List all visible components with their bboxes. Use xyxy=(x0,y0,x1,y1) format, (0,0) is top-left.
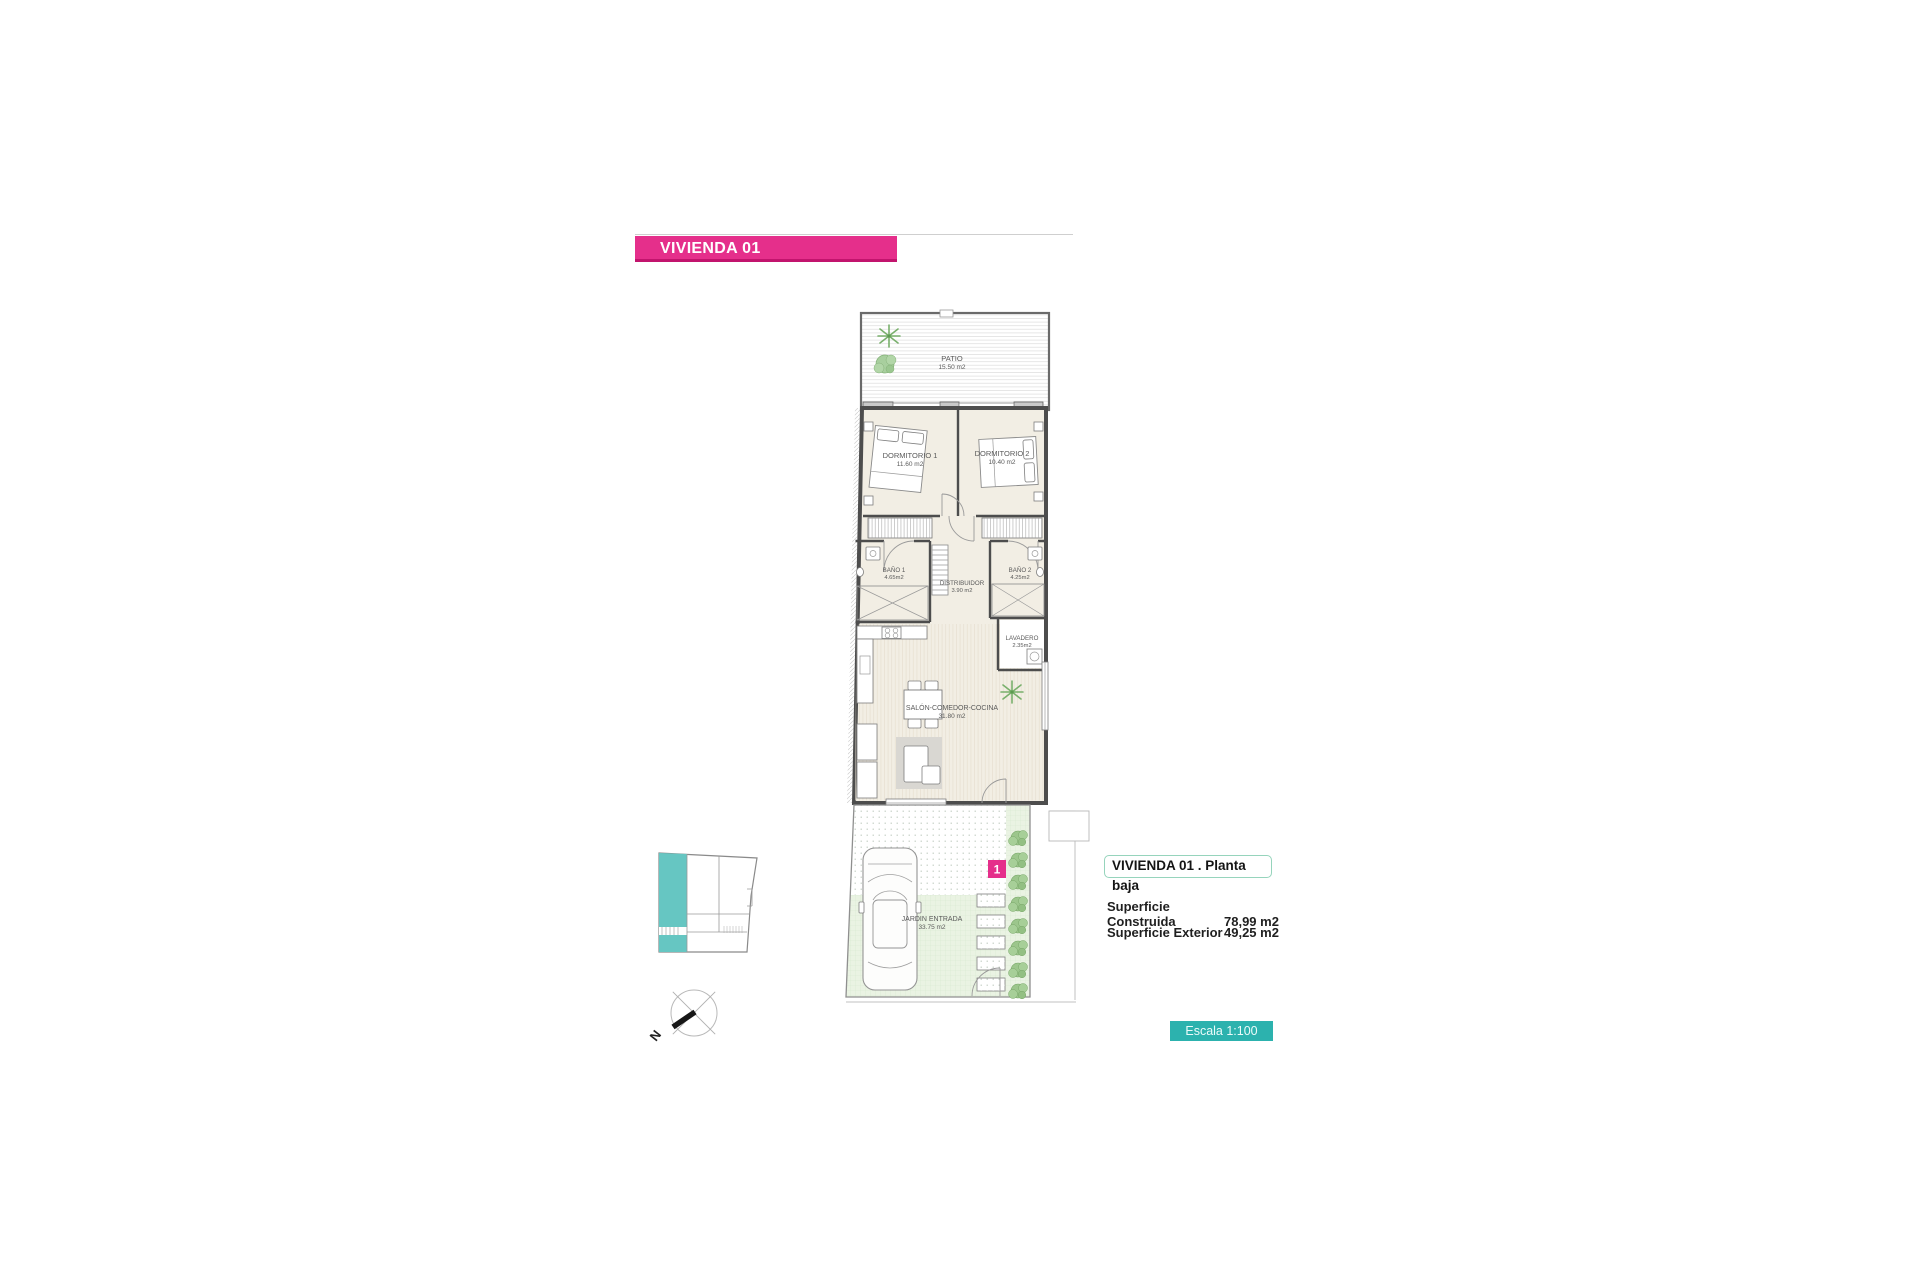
room-label-patio: PATIO xyxy=(941,354,963,363)
compass-north-label: N xyxy=(647,1027,665,1044)
unit-badge-number: 1 xyxy=(994,863,1001,877)
scale-box: Escala 1:100 xyxy=(1170,1021,1273,1041)
room-area-patio: 15.50 m2 xyxy=(938,364,965,371)
legend-row-exterior: Superficie Exterior49,25 m2 xyxy=(1107,925,1279,940)
nightstand xyxy=(864,496,873,505)
nightstand xyxy=(864,422,873,431)
floor-plan: PATIO 15.50 m2 xyxy=(830,300,1090,1010)
legend-label-exterior: Superficie Exterior xyxy=(1107,925,1224,940)
wardrobe-1 xyxy=(868,518,932,538)
unit-badge: 1 xyxy=(988,860,1006,878)
distribuidor-shaft xyxy=(932,545,948,595)
key-plan-highlight-unit xyxy=(659,853,687,952)
wardrobe-2 xyxy=(982,518,1042,538)
nightstand xyxy=(1034,492,1043,501)
room-area-dormitorio-2: 10.40 m2 xyxy=(988,459,1015,466)
room-area-jardin: 33.75 m2 xyxy=(918,924,945,931)
room-area-salon: 31.80 m2 xyxy=(938,713,965,720)
north-compass: N xyxy=(646,982,738,1074)
room-area-bano-1: 4.65m2 xyxy=(884,575,903,581)
floor-plan-svg: PATIO 15.50 m2 xyxy=(830,300,1090,1010)
sofa-rug xyxy=(896,737,942,789)
legend-title-box: VIVIENDA 01 . Planta baja xyxy=(1104,855,1272,878)
room-label-distribuidor: DISTRIBUIDOR xyxy=(940,580,985,587)
legend-value-exterior: 49,25 m2 xyxy=(1224,925,1279,940)
page: VIVIENDA 01 xyxy=(0,0,1920,1280)
north-arrow-icon xyxy=(673,1012,695,1027)
room-label-salon: SALÓN-COMEDOR-COCINA xyxy=(906,703,999,712)
room-label-dormitorio-2: DORMITORIO 2 xyxy=(975,449,1030,458)
room-label-dormitorio-1: DORMITORIO 1 xyxy=(883,451,938,460)
room-patio: PATIO 15.50 m2 xyxy=(861,310,1049,413)
room-label-bano-2: BAÑO 2 xyxy=(1009,567,1032,574)
key-plan-notch xyxy=(659,927,687,935)
room-area-distribuidor: 3.90 m2 xyxy=(952,588,973,594)
room-area-bano-2: 4.25m2 xyxy=(1010,575,1029,581)
key-plan xyxy=(648,844,763,959)
room-label-bano-1: BAÑO 1 xyxy=(883,567,906,574)
room-area-lavadero: 2.35m2 xyxy=(1012,643,1031,649)
room-area-dormitorio-1: 11.60 m2 xyxy=(897,461,924,468)
patio-top-vent xyxy=(940,310,953,317)
header-rule xyxy=(635,234,1073,235)
jardin-entrada: 1 JARDIN ENTRADA 33.75 m2 xyxy=(846,805,1089,1002)
nightstand xyxy=(1034,422,1043,431)
room-label-jardin: JARDIN ENTRADA xyxy=(902,916,963,923)
title-banner: VIVIENDA 01 xyxy=(635,236,897,262)
room-label-lavadero: LAVADERO xyxy=(1006,635,1039,642)
legend-title: VIVIENDA 01 . Planta baja xyxy=(1112,858,1246,893)
side-step xyxy=(1049,811,1089,841)
